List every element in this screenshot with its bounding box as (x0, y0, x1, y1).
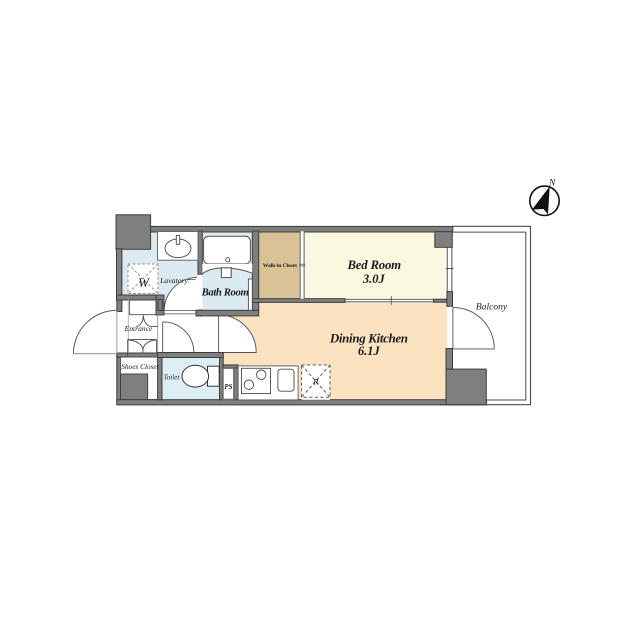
svg-text:R: R (312, 376, 319, 386)
svg-text:Toilet: Toilet (164, 373, 181, 381)
svg-text:N: N (548, 178, 556, 188)
svg-text:Lavatory: Lavatory (159, 276, 188, 285)
svg-text:Shoes Closet: Shoes Closet (121, 362, 159, 371)
svg-text:Bath Room: Bath Room (201, 286, 249, 298)
svg-text:W: W (138, 275, 150, 290)
svg-text:6.1J: 6.1J (358, 344, 380, 358)
svg-text:Bed Room: Bed Room (346, 258, 401, 272)
svg-text:3.0J: 3.0J (362, 272, 385, 286)
svg-text:Entrance: Entrance (124, 324, 153, 333)
svg-text:Balcony: Balcony (476, 302, 508, 312)
svg-text:PS: PS (224, 383, 232, 391)
svg-text:Walk-in Closet: Walk-in Closet (263, 263, 297, 269)
